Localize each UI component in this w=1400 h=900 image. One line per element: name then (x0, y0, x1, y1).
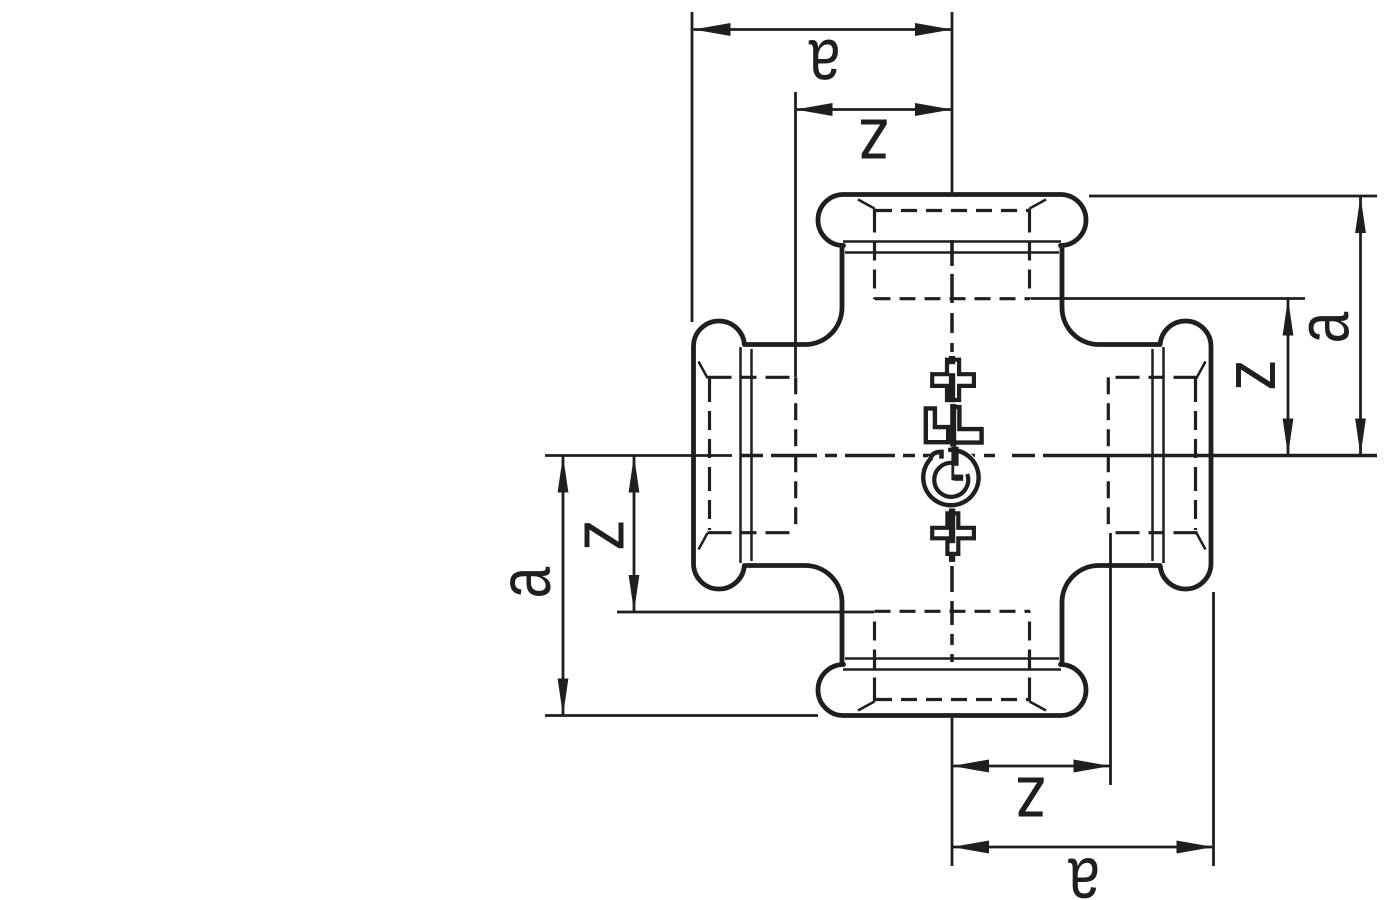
svg-text:z: z (558, 519, 639, 550)
svg-text:a: a (808, 24, 840, 105)
svg-text:a: a (1068, 843, 1100, 900)
svg-text:z: z (1210, 359, 1291, 390)
svg-text:z: z (1015, 761, 1046, 842)
svg-text:a: a (1283, 311, 1364, 343)
svg-text:a: a (484, 566, 565, 598)
svg-text:z: z (858, 103, 889, 184)
